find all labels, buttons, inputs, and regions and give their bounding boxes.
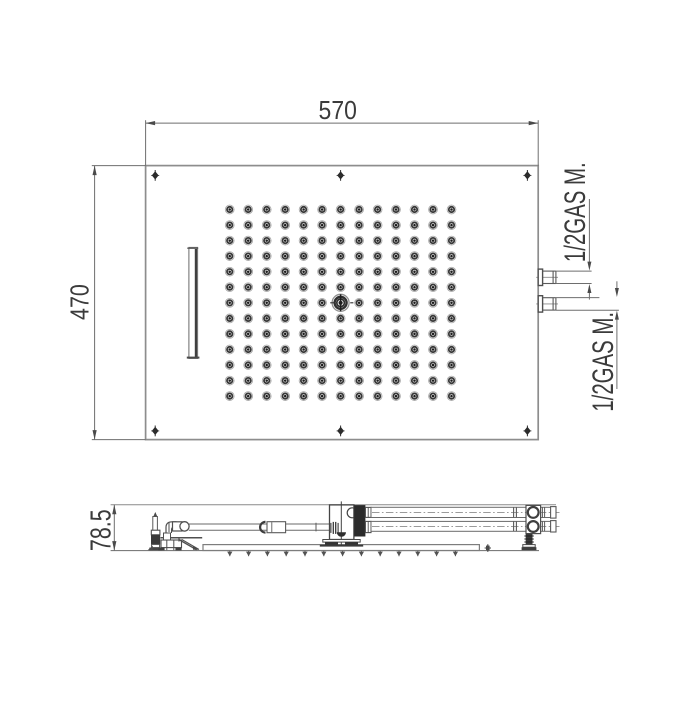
- svg-text:1/2GAS M.: 1/2GAS M.: [559, 162, 592, 262]
- svg-text:78.5: 78.5: [85, 509, 117, 551]
- svg-text:1/2GAS M.: 1/2GAS M.: [587, 312, 620, 412]
- svg-text:470: 470: [66, 284, 94, 320]
- svg-text:570: 570: [319, 97, 357, 125]
